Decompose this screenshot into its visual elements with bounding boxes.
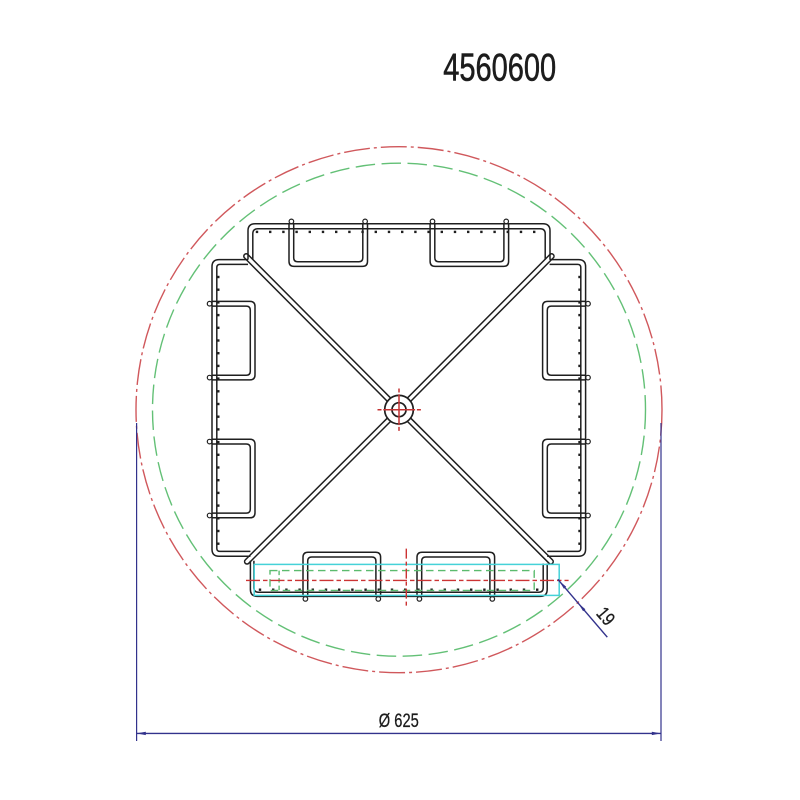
svg-text:4560600: 4560600 — [443, 47, 556, 90]
svg-text:Ø 625: Ø 625 — [379, 710, 419, 732]
